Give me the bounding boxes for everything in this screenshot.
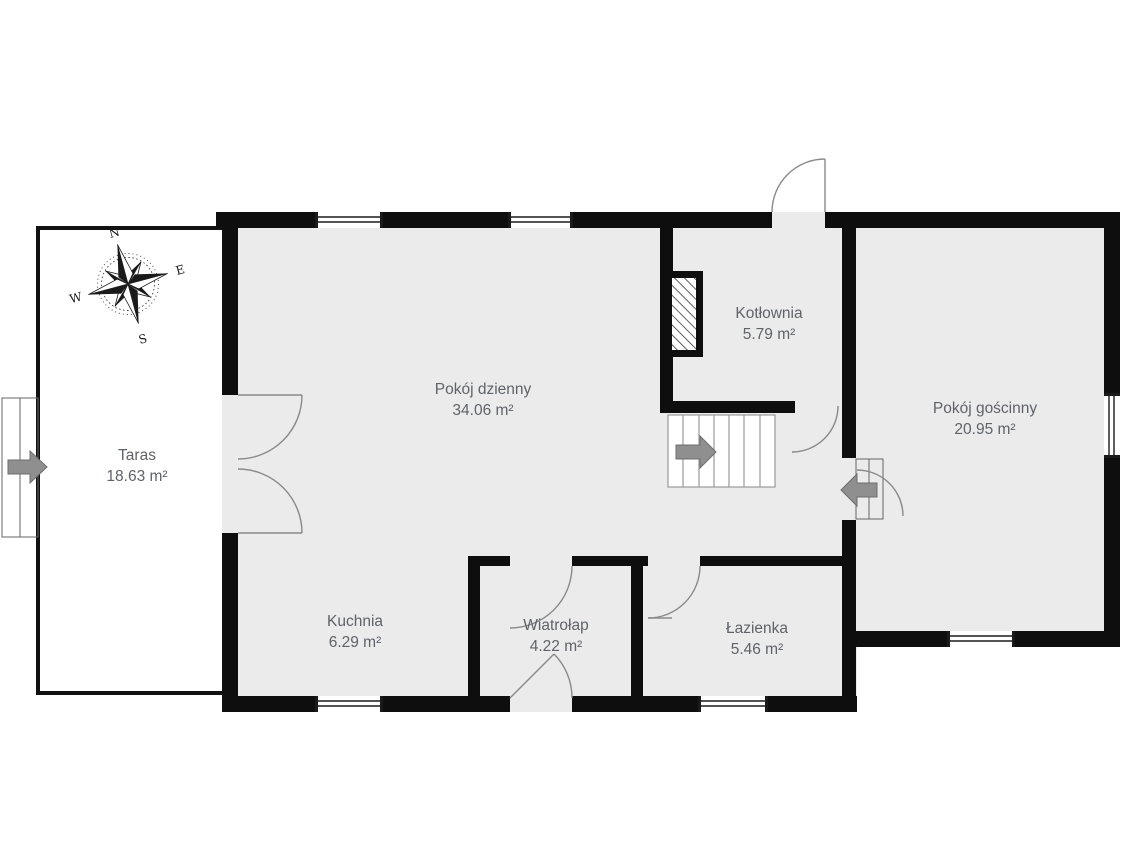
room-name: Wiatrołap bbox=[523, 615, 588, 636]
chimney bbox=[665, 271, 703, 357]
room-label-wiatrolap: Wiatrołap 4.22 m² bbox=[523, 615, 588, 657]
room-area: 5.79 m² bbox=[735, 324, 802, 345]
room-name: Kotłownia bbox=[735, 303, 802, 324]
window-top-living-2 bbox=[508, 212, 573, 228]
room-area: 20.95 m² bbox=[933, 419, 1037, 440]
room-label-kuchnia: Kuchnia 6.29 m² bbox=[327, 611, 383, 653]
window-bathroom bbox=[698, 696, 768, 712]
terrace-entry-arrow bbox=[8, 451, 47, 483]
window-top-living bbox=[315, 212, 383, 228]
compass-west-label: W bbox=[68, 289, 84, 306]
floor-plan-canvas: N E S W Taras 18.63 m² Pokój dzienny 34.… bbox=[0, 0, 1123, 848]
compass-rose: N E S W bbox=[54, 211, 201, 361]
room-label-kotlownia: Kotłownia 5.79 m² bbox=[735, 303, 802, 345]
compass-east-label: E bbox=[174, 262, 186, 278]
room-area: 34.06 m² bbox=[435, 400, 532, 421]
room-name: Pokój gościnny bbox=[933, 398, 1037, 419]
window-kitchen bbox=[315, 696, 383, 712]
room-name: Kuchnia bbox=[327, 611, 383, 632]
room-name: Łazienka bbox=[726, 618, 788, 639]
room-label-pokoj-goscinny: Pokój gościnny 20.95 m² bbox=[933, 398, 1037, 440]
window-guest-right bbox=[1104, 393, 1120, 458]
room-name: Pokój dzienny bbox=[435, 379, 532, 400]
room-label-pokoj-dzienny: Pokój dzienny 34.06 m² bbox=[435, 379, 532, 421]
room-area: 6.29 m² bbox=[327, 632, 383, 653]
door-exterior-top bbox=[772, 159, 825, 212]
room-area: 18.63 m² bbox=[106, 466, 167, 487]
room-area: 4.22 m² bbox=[523, 636, 588, 657]
room-area: 5.46 m² bbox=[726, 639, 788, 660]
window-guest-bottom bbox=[947, 631, 1015, 647]
compass-south-label: S bbox=[137, 331, 149, 347]
room-label-taras: Taras 18.63 m² bbox=[106, 445, 167, 487]
room-name: Taras bbox=[106, 445, 167, 466]
room-label-lazienka: Łazienka 5.46 m² bbox=[726, 618, 788, 660]
